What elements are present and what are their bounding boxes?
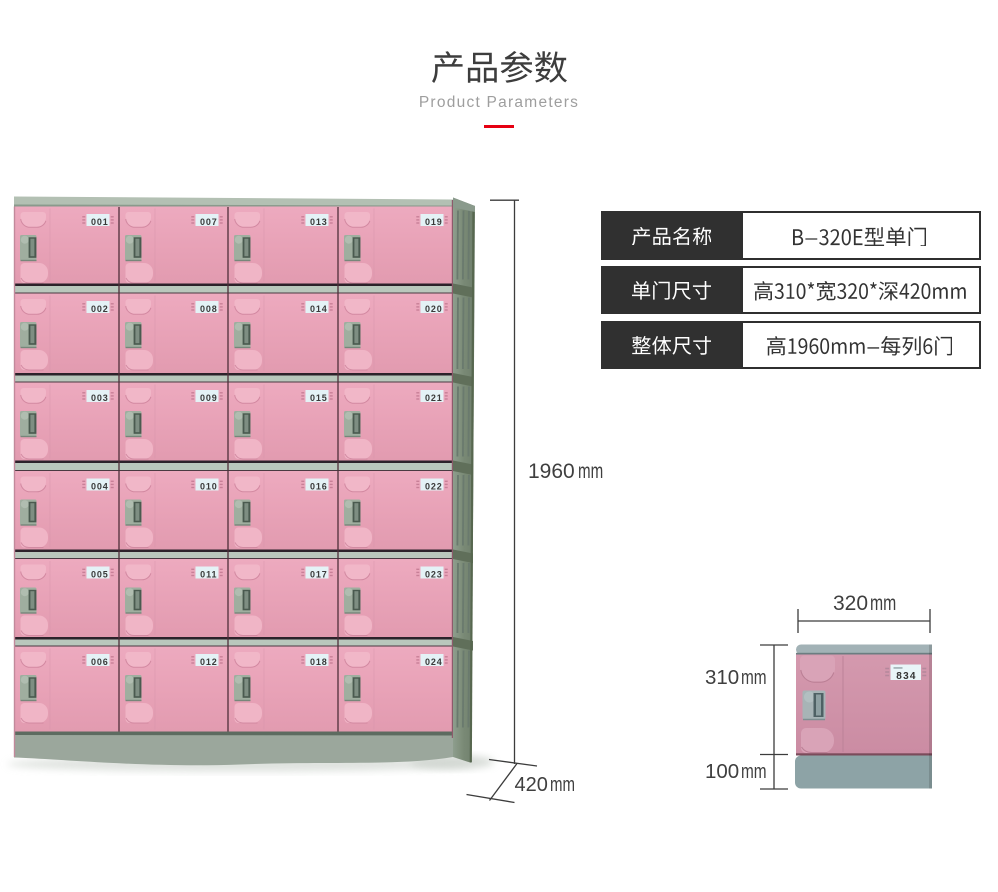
- svg-text:003: 003: [91, 393, 109, 403]
- svg-text:022: 022: [425, 481, 443, 491]
- svg-text:010: 010: [200, 481, 218, 491]
- svg-text:019: 019: [425, 217, 443, 227]
- svg-text:006: 006: [91, 657, 109, 667]
- svg-text:016: 016: [310, 481, 328, 491]
- svg-text:024: 024: [425, 657, 443, 667]
- svg-text:014: 014: [310, 304, 328, 314]
- svg-text:009: 009: [200, 393, 218, 403]
- svg-text:012: 012: [200, 657, 218, 667]
- svg-text:002: 002: [91, 304, 109, 314]
- svg-text:007: 007: [200, 217, 218, 227]
- svg-text:021: 021: [425, 393, 443, 403]
- svg-text:017: 017: [310, 569, 328, 579]
- svg-text:023: 023: [425, 569, 443, 579]
- svg-text:008: 008: [200, 304, 218, 314]
- svg-text:015: 015: [310, 393, 328, 403]
- svg-text:018: 018: [310, 657, 328, 667]
- svg-text:013: 013: [310, 217, 328, 227]
- svg-text:004: 004: [91, 481, 109, 491]
- svg-text:834: 834: [896, 671, 917, 682]
- svg-text:020: 020: [425, 304, 443, 314]
- svg-text:001: 001: [91, 217, 109, 227]
- svg-text:005: 005: [91, 569, 109, 579]
- svg-text:011: 011: [200, 569, 217, 579]
